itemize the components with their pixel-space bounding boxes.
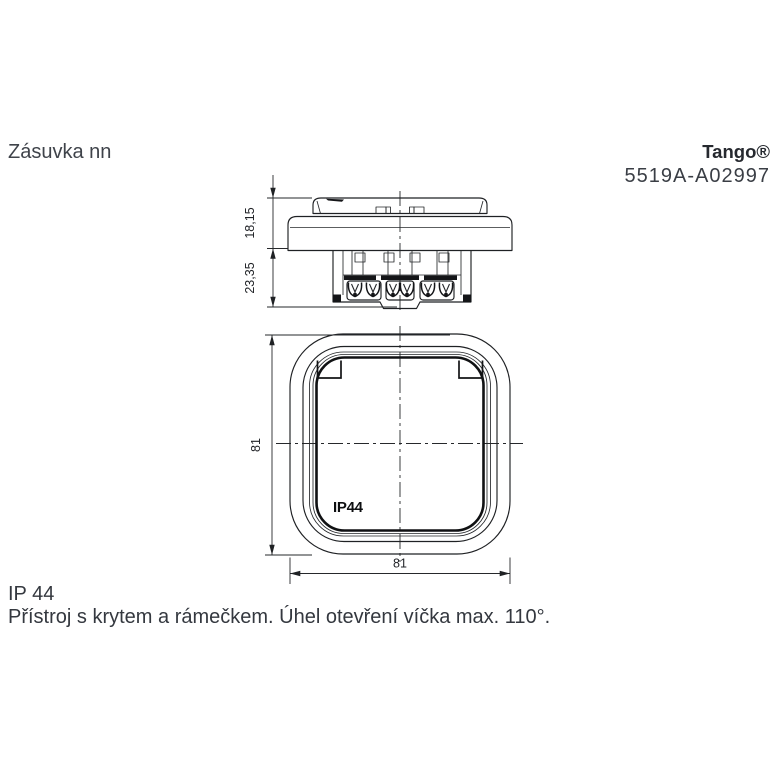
dimension-arrow <box>290 571 300 576</box>
dim-label-23-35: 23,35 <box>243 262 257 293</box>
front-view-width-dimension: 81 <box>290 557 510 585</box>
dimension-arrow <box>270 188 275 198</box>
dim-label-height-81: 81 <box>249 438 263 452</box>
dimension-arrow <box>270 249 275 259</box>
side-view-dimensions: 18,15 23,35 <box>243 175 397 307</box>
dimension-arrow <box>270 297 275 307</box>
technical-drawing: 18,15 23,35 IP44 81 <box>0 0 775 775</box>
dim-label-18-15: 18,15 <box>243 207 257 238</box>
terminal-block <box>347 281 454 300</box>
dimension-arrow <box>269 335 274 345</box>
dim-label-width-81: 81 <box>393 557 407 571</box>
front-view-height-dimension: 81 <box>249 335 450 555</box>
front-view-drawing: IP44 81 81 <box>249 326 523 584</box>
lid-marking-ip44: IP44 <box>333 499 364 516</box>
footer-description: Přístroj s krytem a rámečkem. Úhel otevř… <box>8 606 550 629</box>
dimension-arrow <box>500 571 510 576</box>
page: Zásuvka nn Tango® 5519A-A02997 <box>0 0 775 775</box>
footer-ip-rating: IP 44 <box>8 583 54 606</box>
contact-claws <box>348 283 452 297</box>
side-view-mechanism <box>333 251 471 309</box>
dimension-arrow <box>269 545 274 555</box>
contact-screws <box>353 293 448 297</box>
side-view-drawing: 18,15 23,35 <box>243 175 512 312</box>
